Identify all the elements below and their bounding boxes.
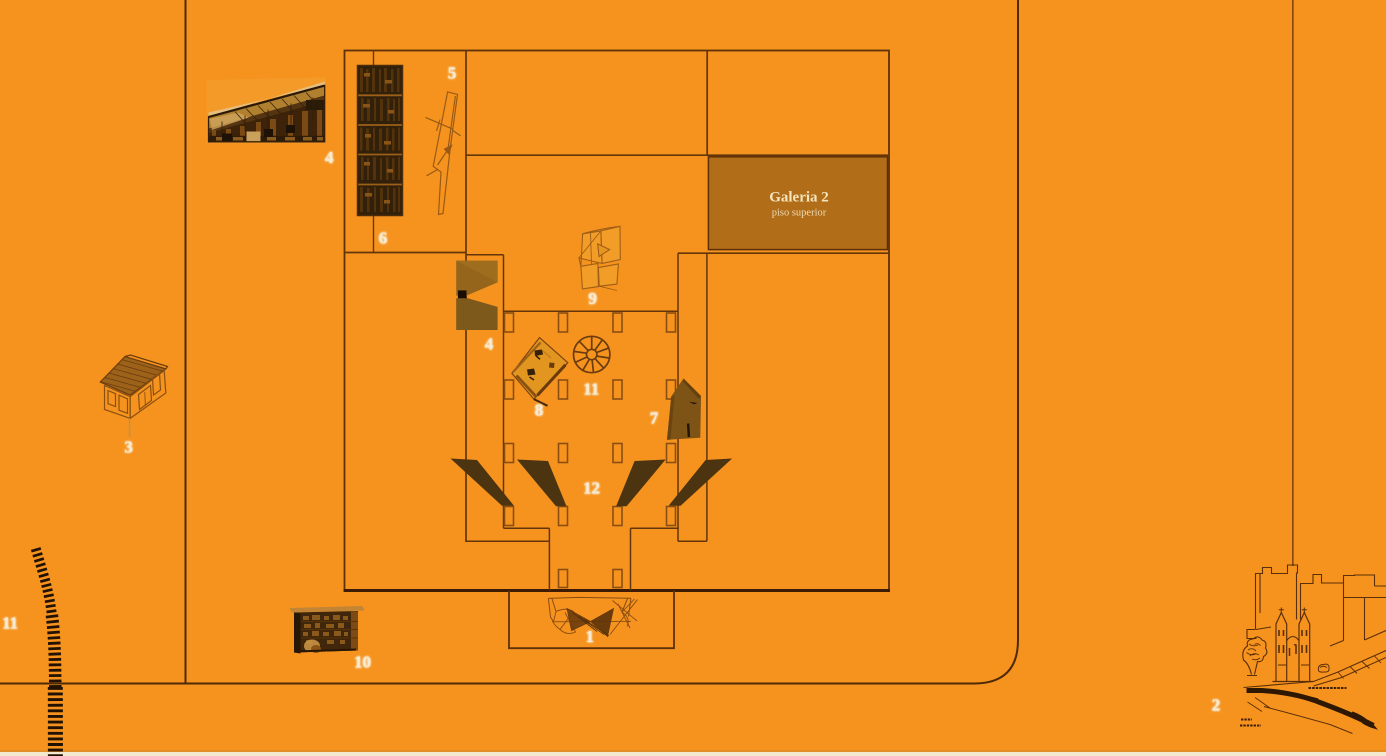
- svg-text:11: 11: [583, 380, 599, 399]
- svg-text:11: 11: [2, 614, 18, 633]
- svg-text:4: 4: [485, 335, 494, 354]
- svg-text:9: 9: [588, 289, 597, 308]
- svg-text:6: 6: [379, 229, 388, 248]
- svg-text:piso superior: piso superior: [772, 208, 827, 219]
- svg-text:3: 3: [124, 438, 133, 457]
- svg-text:1: 1: [585, 627, 594, 646]
- svg-text:4: 4: [325, 148, 334, 167]
- svg-text:5: 5: [448, 64, 457, 83]
- svg-text:2: 2: [1212, 696, 1221, 715]
- svg-text:8: 8: [535, 401, 544, 420]
- svg-text:10: 10: [354, 653, 371, 672]
- svg-text:12: 12: [583, 479, 600, 498]
- svg-text:7: 7: [650, 409, 659, 428]
- svg-text:Galeria 2: Galeria 2: [769, 190, 829, 206]
